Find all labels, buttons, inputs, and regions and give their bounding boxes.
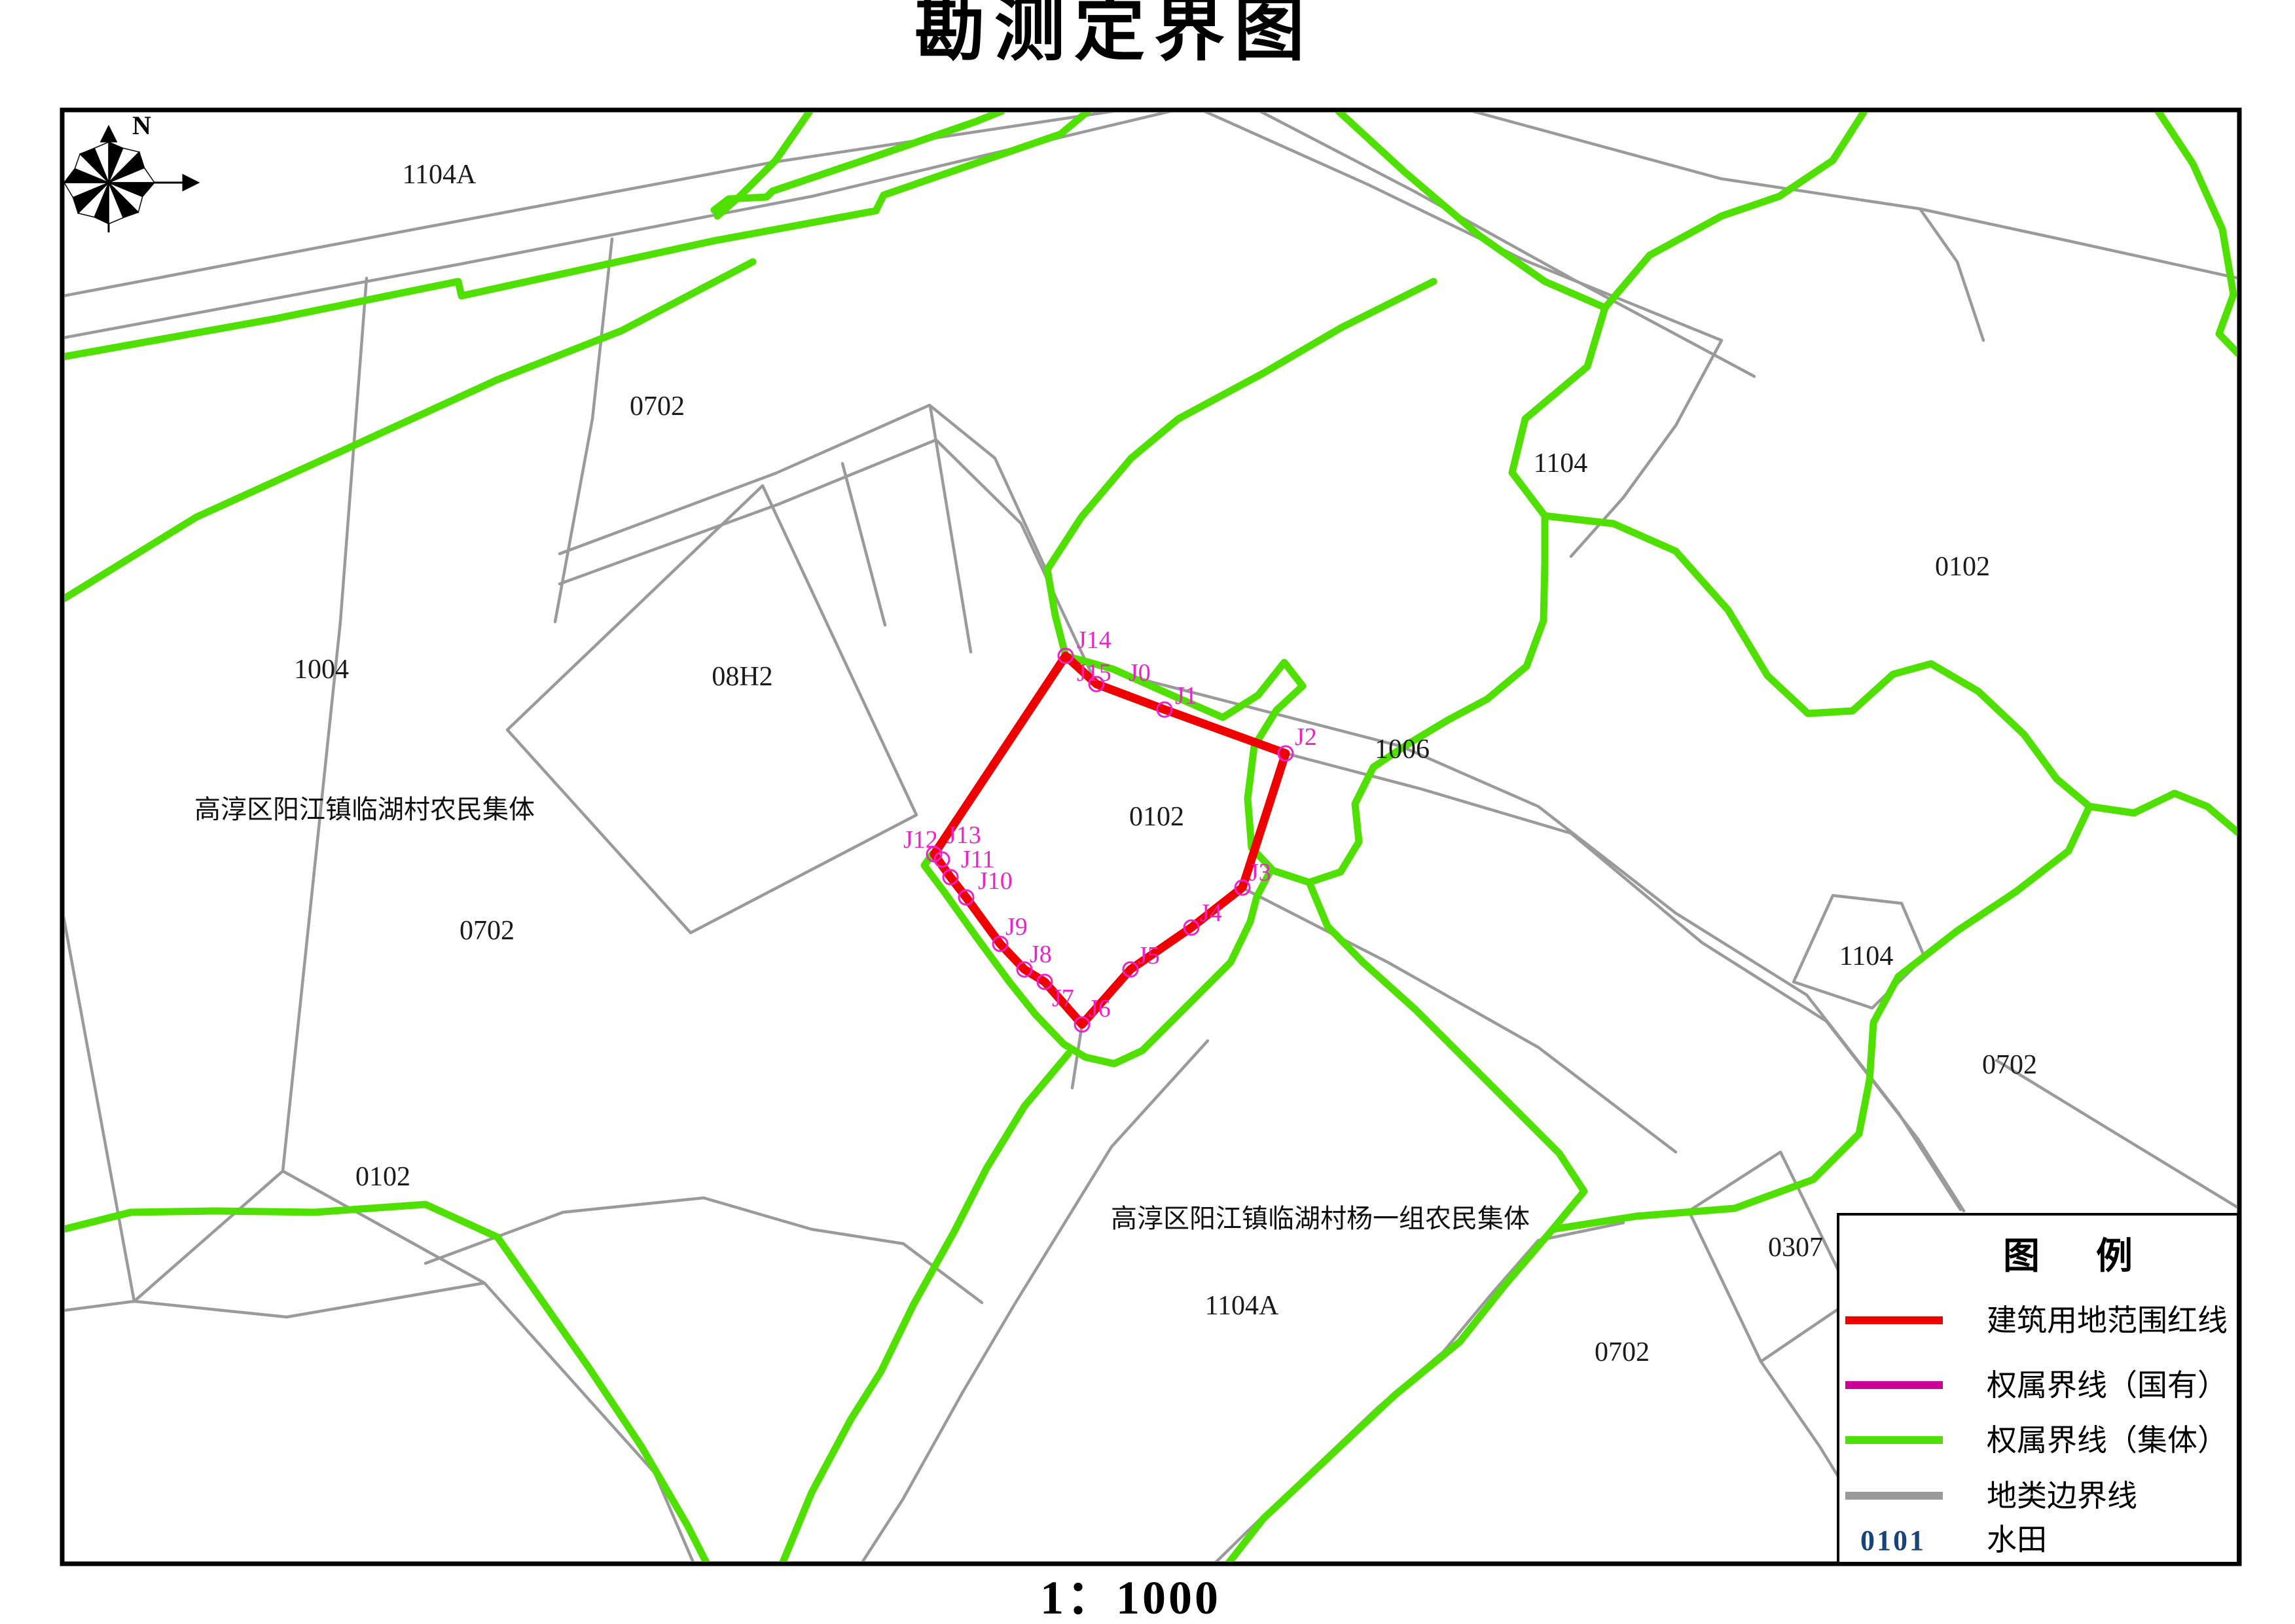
parcel-code-label: 0307 [1768,1233,1823,1263]
land-type-boundary-line [1920,209,2238,278]
map-scale: 1：1000 [1040,1572,1221,1624]
boundary-point-label: J13 [947,821,981,849]
parcel-code-label: 1104A [1205,1291,1279,1321]
collective-boundary-line [924,854,1270,1064]
page-title: 勘测定界图 [914,0,1314,69]
boundary-point-label: J6 [1089,995,1111,1022]
land-type-boundary-line [1997,1060,2238,1208]
boundary-point-label: J1 [1175,682,1197,710]
survey-demarcation-map: 勘测定界图 [0,0,2295,1624]
parcel-code-label: 1104 [1534,448,1587,478]
land-type-boundary-line [1247,890,1676,1152]
parcel-code-label: 0102 [1935,552,1990,582]
parcel-code-label: 0702 [630,391,685,422]
owner-label: 高淳区阳江镇临湖村杨一组农民集体 [1111,1204,1530,1233]
legend-title: 图 例 [2003,1236,2156,1277]
land-type-boundary-line [63,916,134,1301]
land-type-boundary-line [287,1283,694,1564]
boundary-point-label: J0 [1129,659,1151,687]
legend-item-label: 建筑用地范围红线 [1987,1304,2228,1337]
parcel-code-label: 0102 [1129,802,1184,832]
parcel-code-label: 1104A [403,160,477,190]
land-type-boundary-line [134,1171,484,1301]
parcel-code-label: 0702 [1982,1050,2037,1080]
land-type-boundary-line [1214,1223,1623,1564]
legend-item-label: 权属界线（集体） [1987,1424,2228,1457]
land-type-boundary-line [560,405,1961,1210]
parcel-code-label: 0702 [460,916,515,946]
parcel-code-label: 08H2 [712,662,772,692]
boundary-point-labels: J14J15J0J1J2J3J4J5J6J7J8J9J10J11J12J13 [903,626,1317,1022]
collective-boundary-line [1512,111,2238,833]
boundary-point-label: J12 [903,826,938,854]
land-type-boundary-line [63,111,1170,338]
owner-label: 高淳区阳江镇临湖村农民集体 [194,795,535,824]
boundary-point-label: J2 [1295,723,1317,751]
boundary-point-label: J4 [1200,899,1222,927]
collective-boundary-line [63,111,1088,357]
boundary-point-label: J5 [1138,942,1160,969]
land-type-boundary-line [1920,209,1983,340]
parcel-code-label: 0102 [355,1162,410,1192]
boundary-point-label: J7 [1052,984,1074,1012]
land-type-boundary-line [930,406,971,652]
collective-boundary-line [1248,516,1545,882]
parcel-code-labels: 1104A0702100408H207020102110401021006010… [294,160,2037,1367]
land-type-boundary-line [283,278,367,1171]
boundary-point-label: J11 [961,846,994,873]
parcel-code-label: 0702 [1595,1337,1650,1367]
boundary-point-label: J3 [1249,859,1271,886]
land-type-boundary-line [842,463,885,625]
legend-item-label: 水田 [1987,1523,2047,1557]
legend-code: 0101 [1860,1525,1926,1557]
legend-item-label: 地类边界线 [1987,1479,2137,1513]
boundary-point-label: J9 [1005,913,1028,941]
collective-boundary-line [63,1204,707,1564]
legend-item-label: 权属界线（国有） [1987,1369,2228,1402]
north-label: N [132,111,151,140]
parcel-code-label: 1104 [1839,941,1893,971]
parcel-code-label: 1004 [294,655,349,685]
legend: 图 例 建筑用地范围红线权属界线（国有）权属界线（集体）地类边界线0101水田 [1838,1214,2238,1563]
boundary-point-label: J8 [1030,941,1052,968]
land-type-boundary-line [555,239,612,622]
land-type-boundary-line [1260,111,1754,376]
compass-rose-icon [64,142,154,224]
land-type-boundary-line [63,1301,287,1317]
collective-boundary-line [63,262,753,599]
boundary-point-label: J14 [1077,626,1111,654]
boundary-point-label: J15 [1077,659,1111,687]
parcel-code-label: 1006 [1375,734,1430,765]
collective-boundary-line [782,1054,1068,1564]
north-arrow: N [64,111,196,232]
collective-boundary-line [2158,111,2238,353]
collective-boundary-line [1309,882,1584,1229]
